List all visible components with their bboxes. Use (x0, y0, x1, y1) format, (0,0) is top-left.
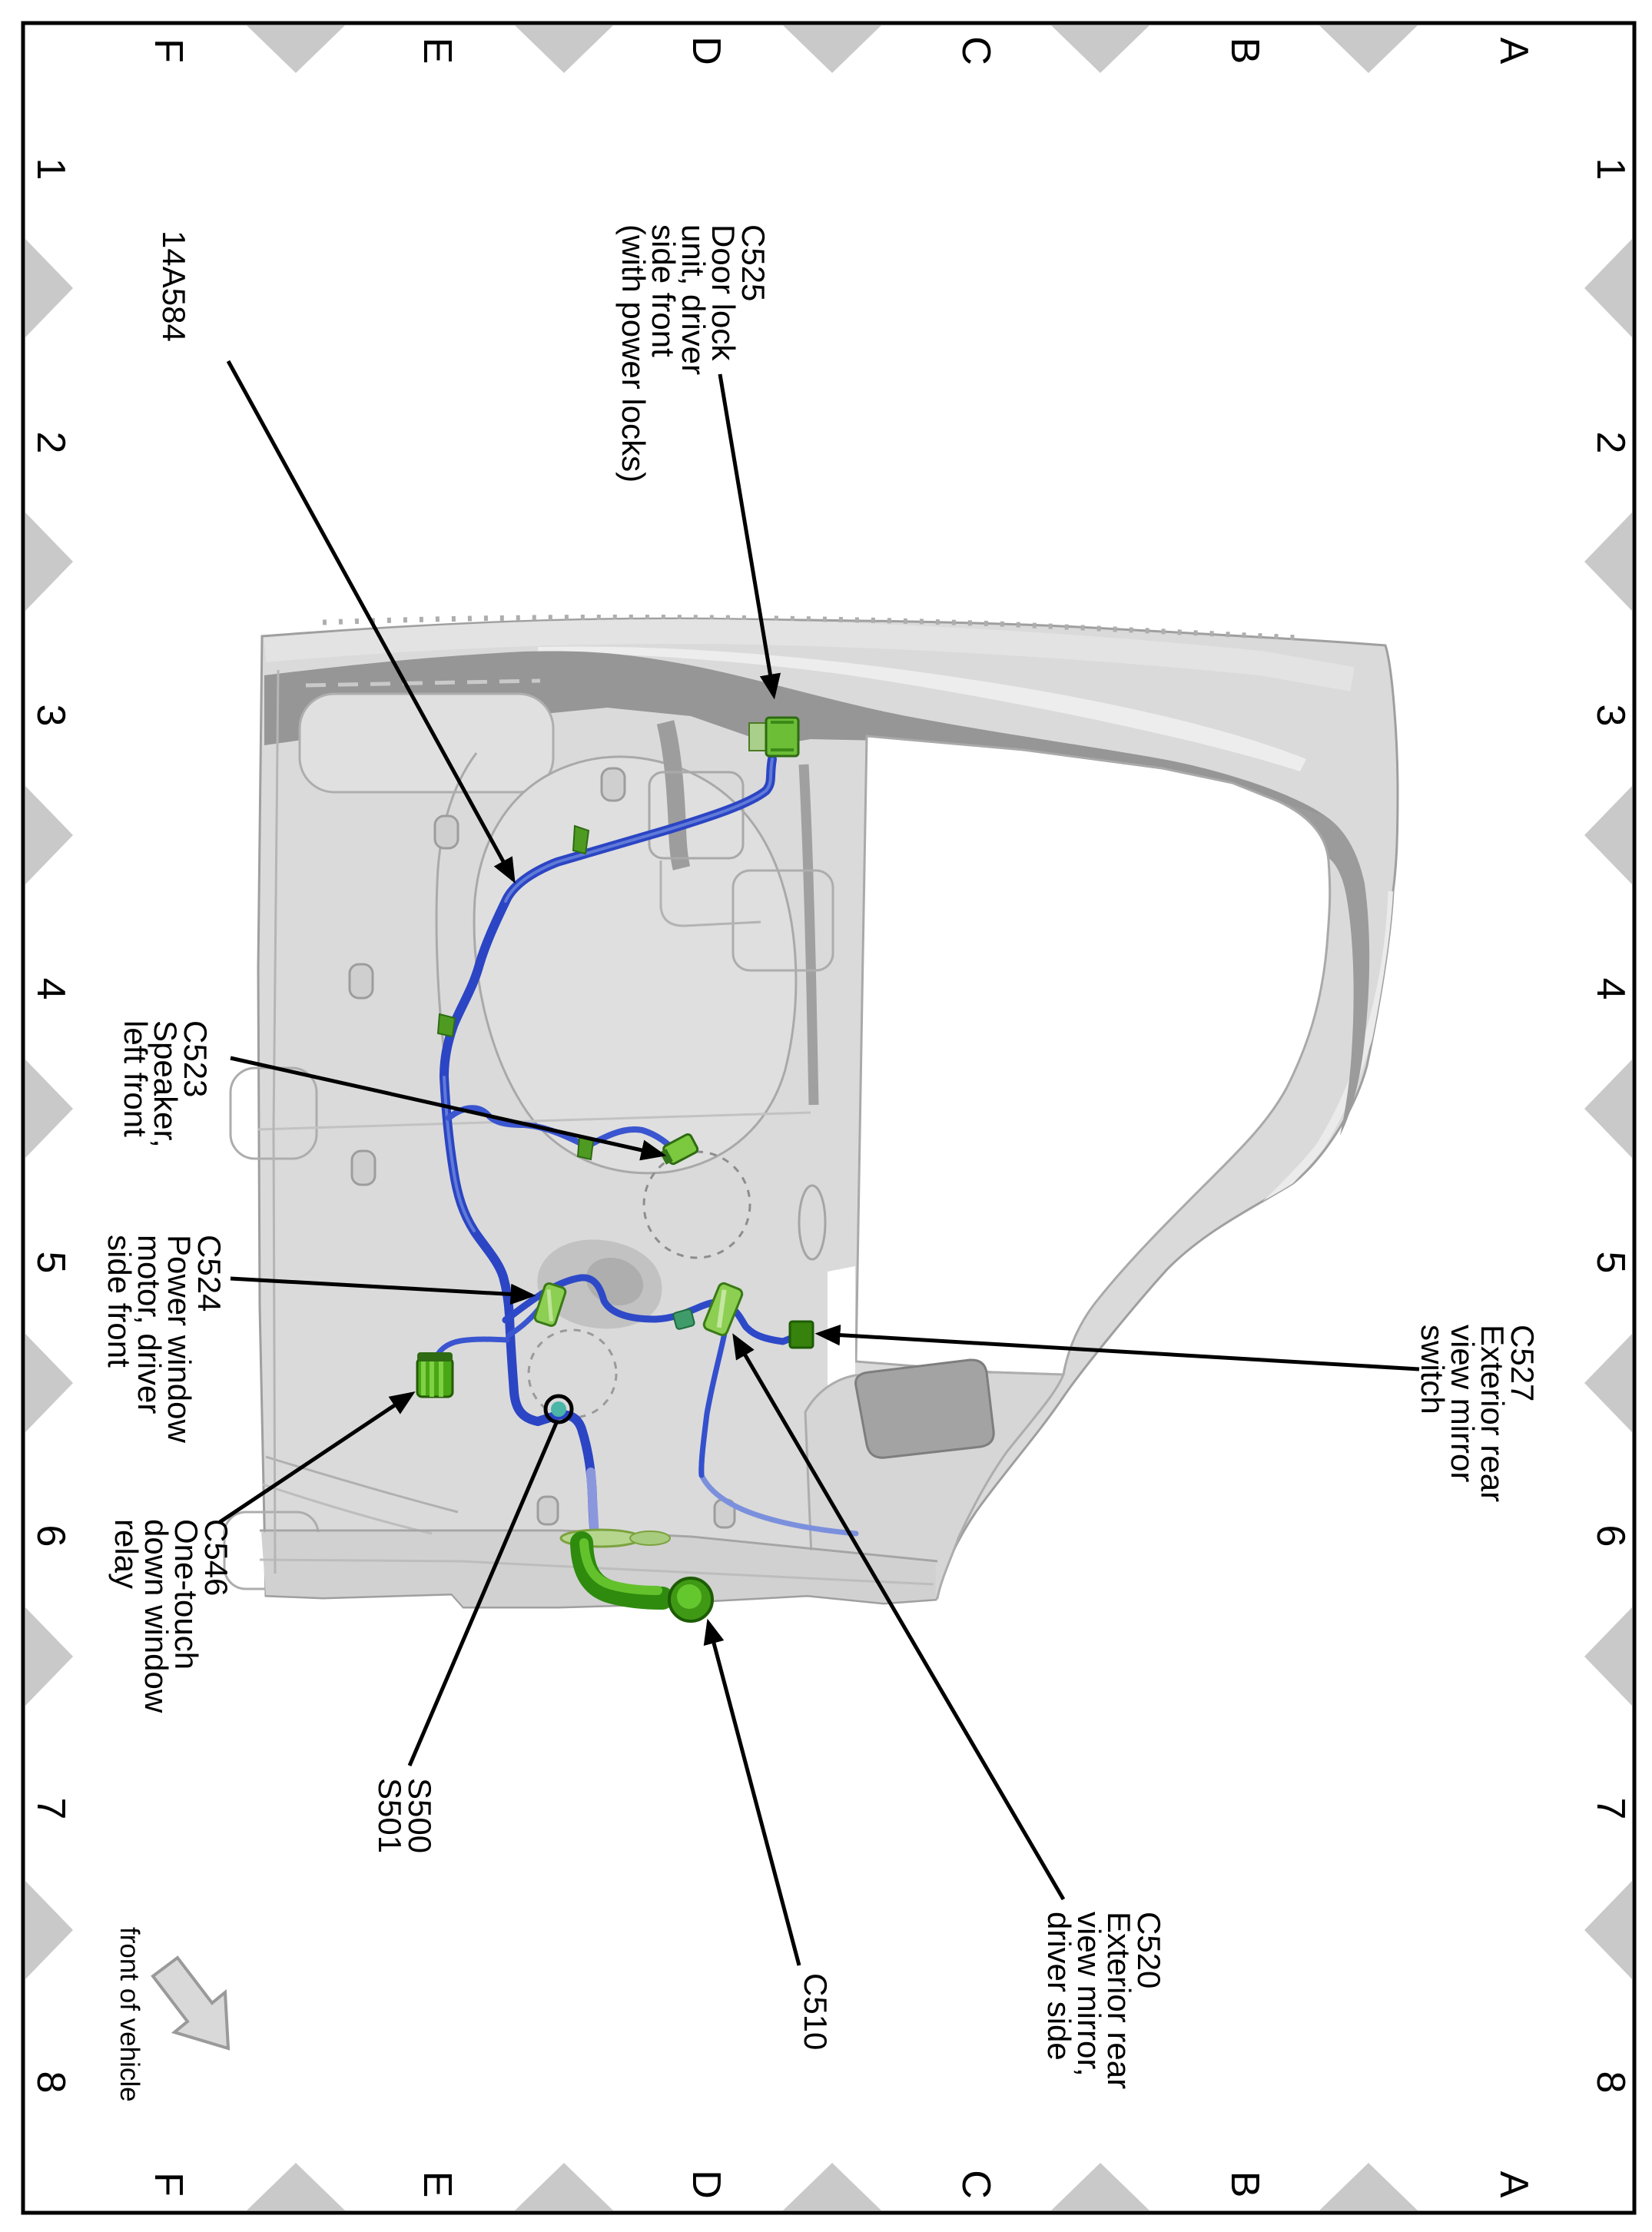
svg-text:F: F (146, 2172, 191, 2197)
svg-text:switch: switch (1415, 1325, 1451, 1414)
svg-text:S501: S501 (372, 1778, 408, 1853)
svg-text:side front: side front (101, 1235, 138, 1368)
svg-text:5: 5 (1588, 1252, 1633, 1274)
svg-text:1: 1 (28, 158, 73, 181)
svg-text:6: 6 (1588, 1525, 1633, 1547)
svg-text:E: E (415, 2171, 459, 2198)
svg-text:B: B (1222, 2171, 1267, 2198)
svg-text:(with power locks): (with power locks) (615, 224, 652, 483)
svg-text:4: 4 (1588, 978, 1633, 1000)
svg-text:front of vehicle: front of vehicle (114, 1927, 144, 2102)
svg-text:2: 2 (28, 432, 73, 454)
svg-text:driver side: driver side (1041, 1912, 1077, 2061)
svg-text:F: F (146, 38, 191, 63)
svg-text:relay: relay (108, 1519, 144, 1589)
svg-text:7: 7 (1588, 1798, 1633, 1820)
svg-text:6: 6 (28, 1525, 73, 1547)
svg-text:C: C (954, 36, 998, 65)
svg-text:E: E (415, 38, 459, 65)
svg-text:D: D (684, 2170, 728, 2199)
svg-text:left front: left front (118, 1020, 154, 1137)
svg-text:A: A (1491, 38, 1536, 65)
svg-text:7: 7 (28, 1798, 73, 1820)
svg-text:1: 1 (1588, 158, 1633, 181)
svg-text:14A584: 14A584 (156, 230, 192, 342)
svg-text:8: 8 (28, 2071, 73, 2094)
svg-text:B: B (1222, 38, 1267, 65)
svg-text:C: C (954, 2170, 998, 2199)
svg-text:A: A (1491, 2171, 1536, 2198)
svg-text:3: 3 (28, 705, 73, 727)
svg-text:C510: C510 (798, 1973, 834, 2050)
svg-text:3: 3 (1588, 705, 1633, 727)
svg-text:2: 2 (1588, 432, 1633, 454)
svg-text:8: 8 (1588, 2071, 1633, 2094)
svg-text:D: D (684, 36, 728, 65)
svg-text:5: 5 (28, 1252, 73, 1274)
svg-text:4: 4 (28, 978, 73, 1000)
